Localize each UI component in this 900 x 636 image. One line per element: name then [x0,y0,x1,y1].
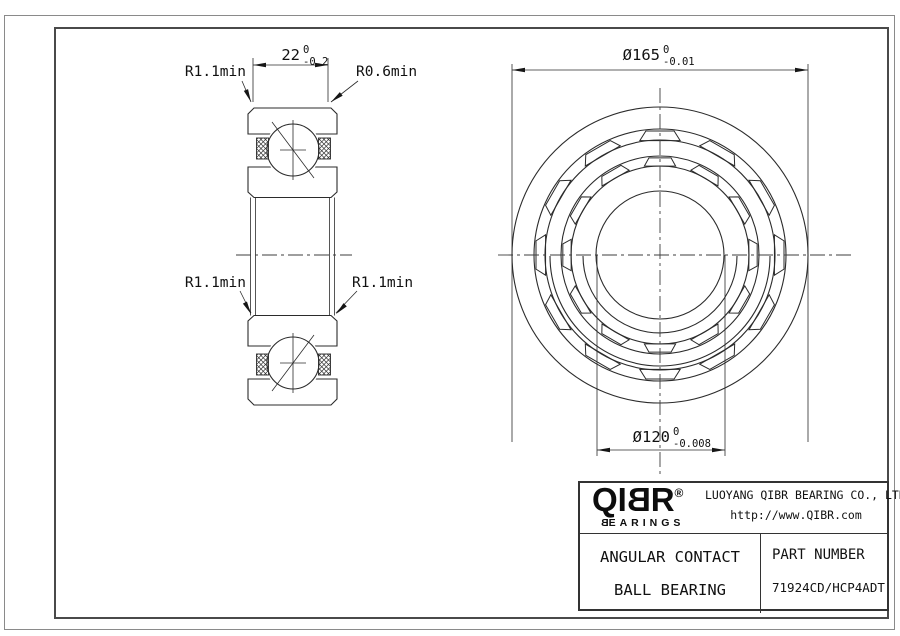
company-logo: QIBR® BEARINGS [592,483,684,529]
label-radius-mid-left: R1.1min [185,275,246,291]
side-view-section [236,108,352,405]
front-view [498,88,854,478]
label-radius-mid-right: R1.1min [352,275,413,291]
leader-labels: R1.1min R0.6min R1.1min R1.1min [185,64,417,313]
company-name: LUOYANG QIBR BEARING CO., LTD [705,488,887,502]
dim-width-tol-upper: 0 [303,44,309,56]
company-website[interactable]: http://www.QIBR.com [705,508,887,522]
label-radius-top-left: R1.1min [185,64,246,80]
company-info: LUOYANG QIBR BEARING CO., LTD http://www… [705,488,887,522]
drawing-sheet: 22 0 -0.2 R1.1min R0.6min R1.1min R1.1mi… [0,0,900,636]
title-block: QIBR® BEARINGS LUOYANG QIBR BEARING CO.,… [578,481,889,611]
dim-bore-tol-upper: 0 [673,426,679,438]
part-number-label: PART NUMBER [772,547,891,563]
title-block-header-row: QIBR® BEARINGS LUOYANG QIBR BEARING CO.,… [580,483,887,534]
dim-bore-tol-lower: -0.008 [673,438,711,450]
part-number-value: 71924CD/HCP4ADT [772,580,891,595]
dim-width-value: 22 [281,46,300,64]
logo-subtext: BEARINGS [597,518,684,529]
dim-od-value: Ø165 [623,46,660,64]
side-view-section-mirror [248,316,337,406]
dim-bore-value: Ø120 [633,428,670,446]
dim-width: 22 0 -0.2 [253,44,328,102]
label-radius-top-right: R0.6min [356,64,417,80]
product-description-cell: ANGULAR CONTACT BALL BEARING [580,534,761,613]
registered-trademark-icon: ® [675,486,684,500]
dim-od-tol-lower: -0.01 [663,56,695,68]
product-type-line2: BALL BEARING [614,581,726,599]
part-number-cell: PART NUMBER 71924CD/HCP4ADT [761,534,891,613]
dim-od-tol-upper: 0 [663,44,669,56]
product-type-line1: ANGULAR CONTACT [600,548,740,566]
logo-wordmark: QIBR® [592,483,684,516]
